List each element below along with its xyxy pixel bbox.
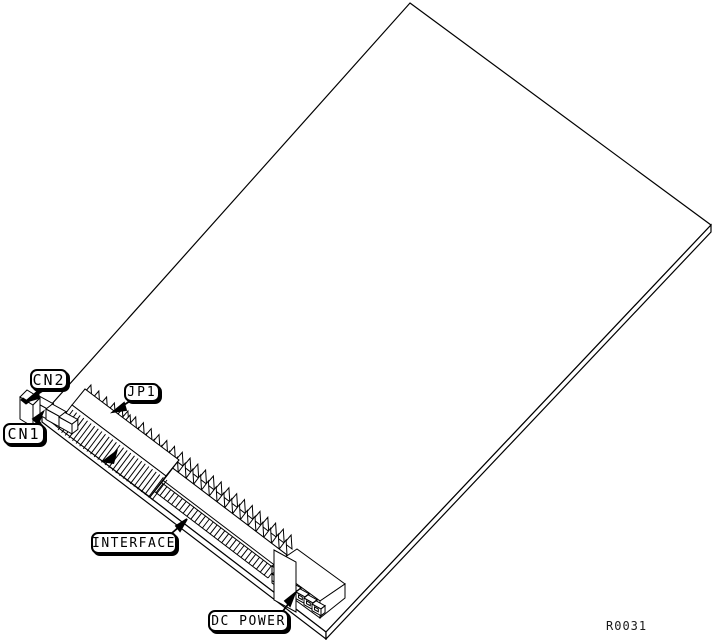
callout-cn2: CN2 xyxy=(30,369,68,390)
callout-jp1: JP1 xyxy=(124,383,160,402)
callout-dc-power: DC POWER xyxy=(208,610,289,632)
figure-reference: R0031 xyxy=(606,619,647,633)
callout-cn1: CN1 xyxy=(3,423,45,445)
callout-interface: INTERFACE xyxy=(91,532,177,554)
diagram-canvas: CN2 CN1 JP1 INTERFACE DC POWER R0031 xyxy=(0,0,713,640)
